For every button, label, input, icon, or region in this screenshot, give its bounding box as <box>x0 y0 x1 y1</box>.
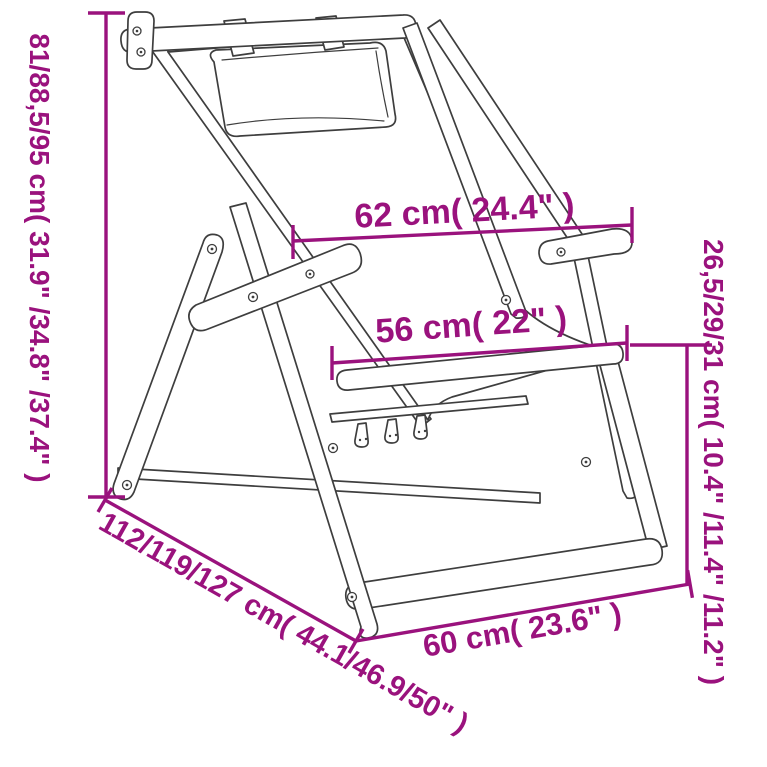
dim-depth-label: 112/119/127 cm( 44.1/46.9/50" ) <box>94 506 474 740</box>
rear-left-leg <box>113 234 223 499</box>
dim-height-label: 81/88,5/95 cm( 31.9" /34.8" /37.4" ) <box>24 33 55 482</box>
top-left-post <box>127 12 154 69</box>
dim-height-line <box>88 13 125 497</box>
dim-bottom-width-label: 60 cm( 23.6" ) <box>420 595 624 663</box>
adjustment-notch-3 <box>414 415 427 439</box>
dimension-diagram: 62 cm( 24.4" ) 56 cm( 22" ) 60 cm( 23.6"… <box>0 0 767 767</box>
dim-seat-height-label: 26,5/29/31 cm( 10.4" /11.4" /11.2" ) <box>698 239 729 685</box>
adjustment-notch-2 <box>385 419 398 443</box>
adjustment-notch-1 <box>355 423 368 447</box>
deck-chair-diagram-canvas: 62 cm( 24.4" ) 56 cm( 22" ) 60 cm( 23.6"… <box>0 0 767 767</box>
headrest-pillow <box>210 42 395 136</box>
right-armrest <box>539 229 632 264</box>
seat-right-rail <box>597 350 667 550</box>
